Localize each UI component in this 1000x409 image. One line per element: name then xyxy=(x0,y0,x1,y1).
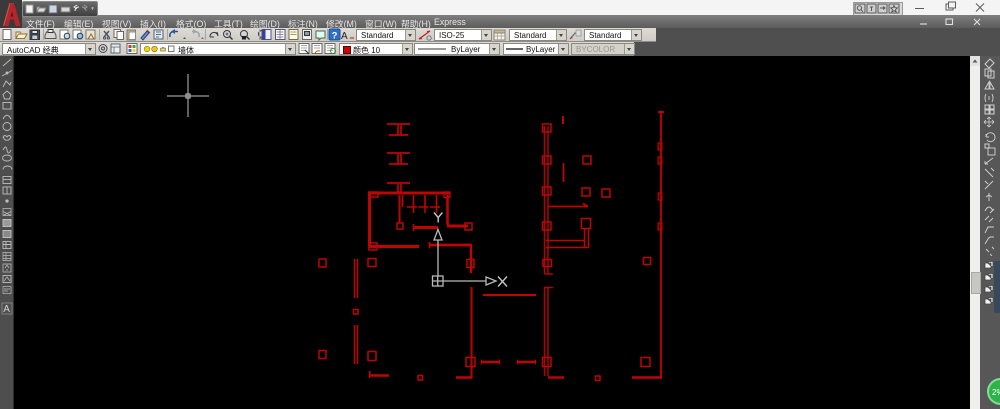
svg-text:?: ? xyxy=(332,30,338,41)
svg-text:A: A xyxy=(341,31,348,41)
